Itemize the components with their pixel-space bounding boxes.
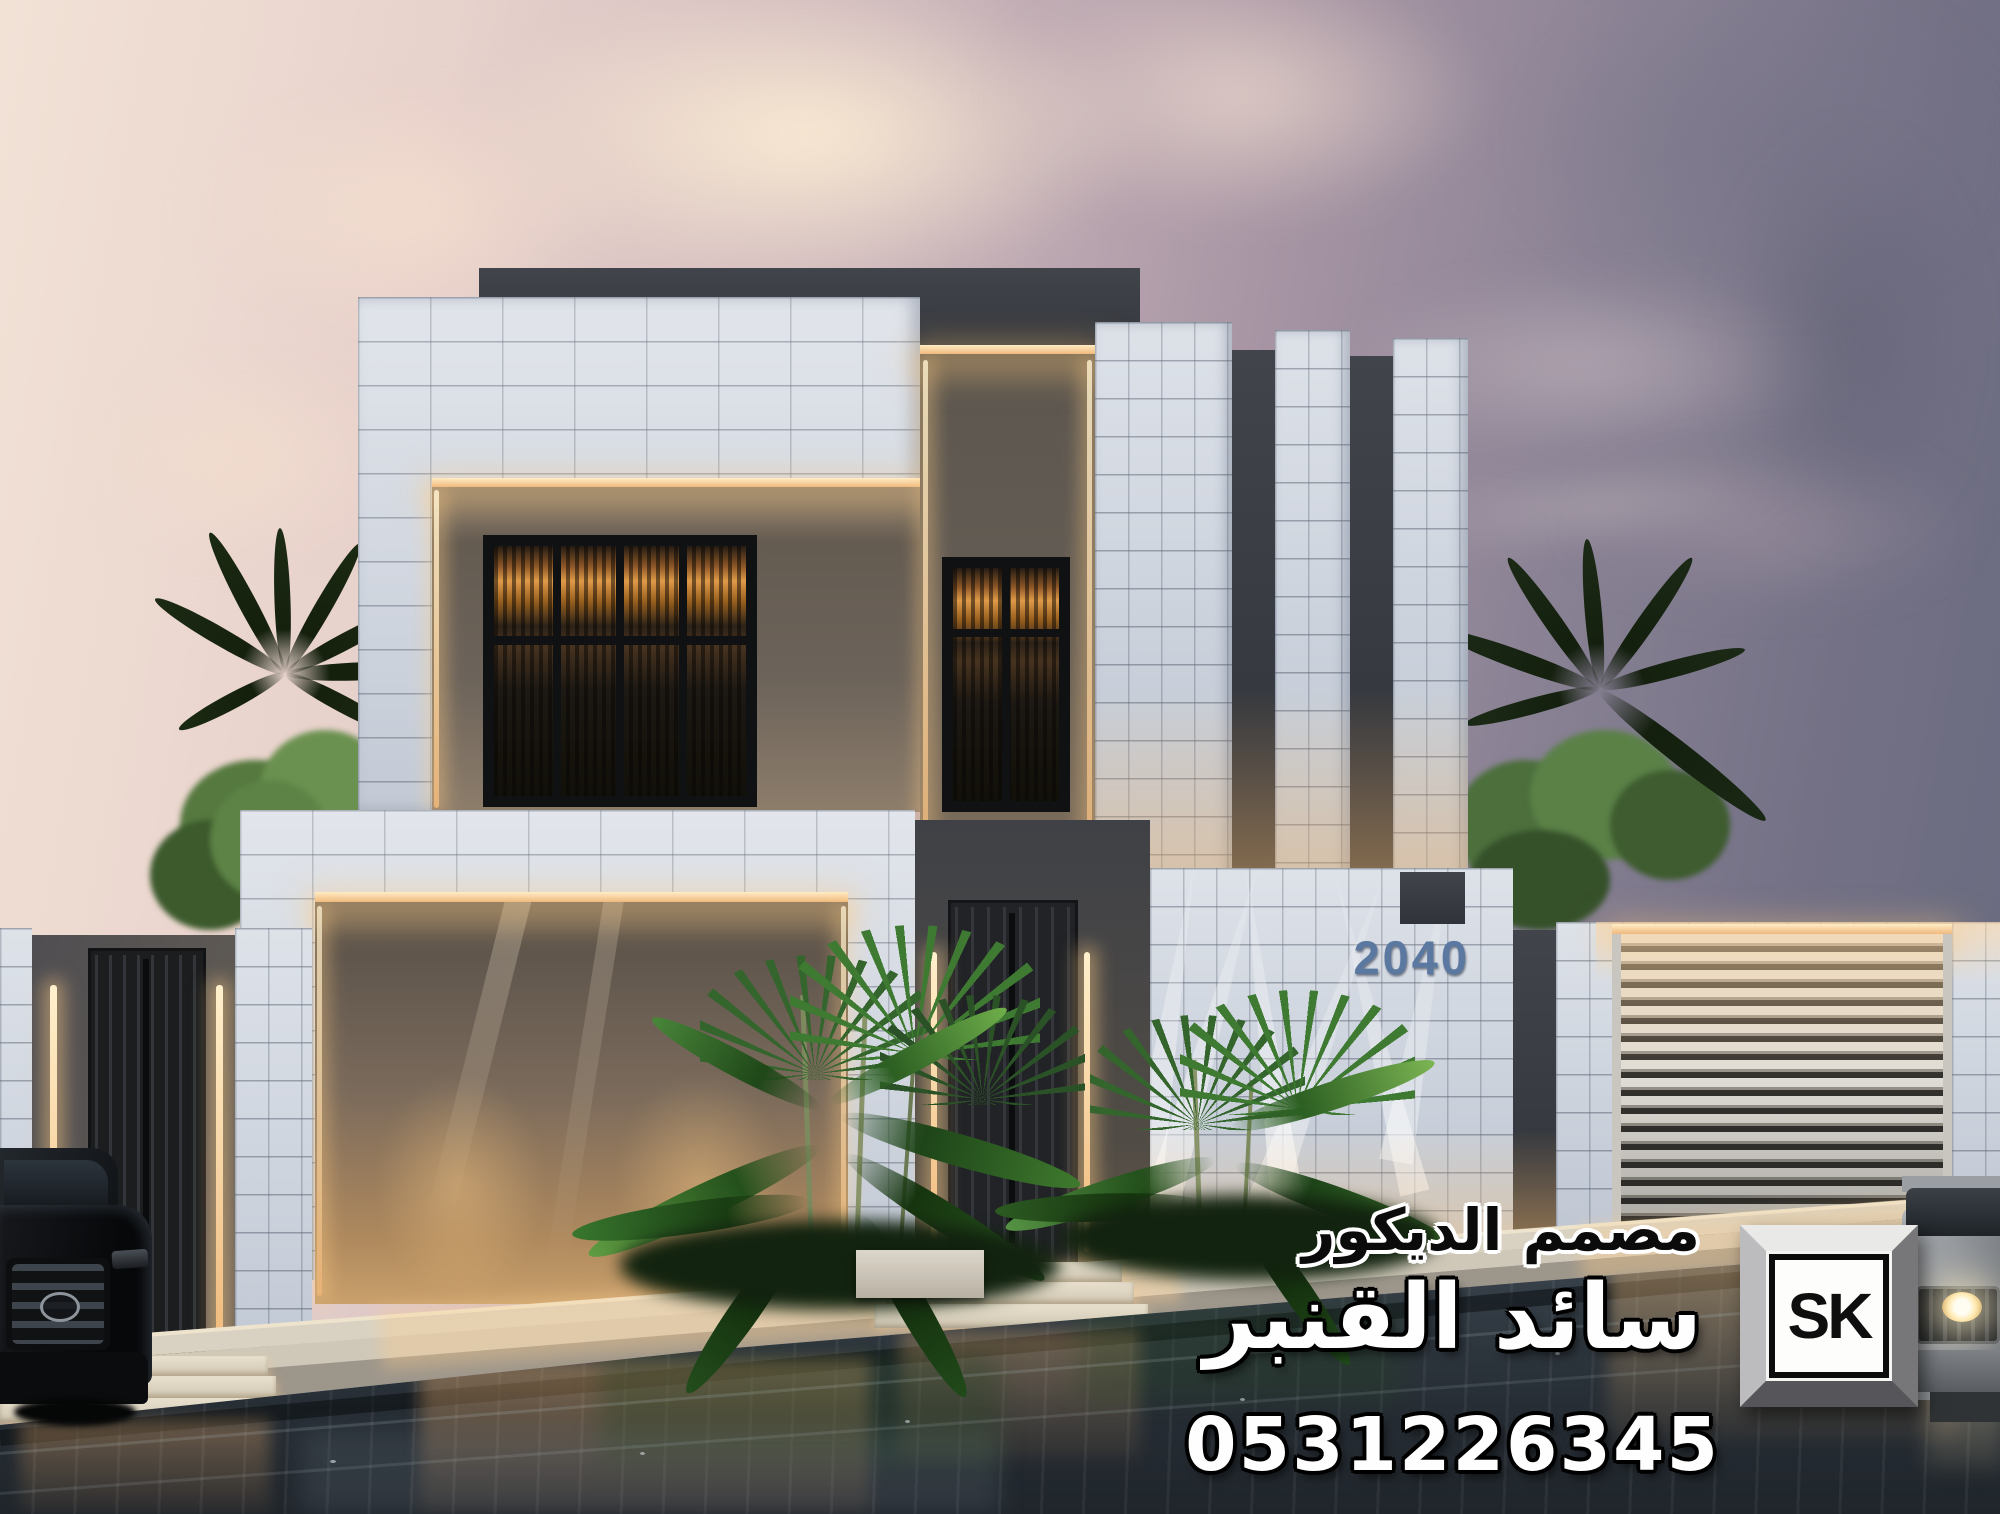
center-led-strip [923, 360, 928, 855]
sparkle [1240, 1398, 1245, 1401]
facade-joint-notch [1400, 872, 1465, 924]
window-mullion [553, 546, 561, 796]
sk-logo-plate: SK [1769, 1254, 1889, 1378]
tower-fin [1095, 322, 1232, 880]
tower-fin-gap [1232, 350, 1275, 880]
suv-left-headlight [111, 1249, 148, 1269]
house-number: 2040 [1280, 930, 1470, 985]
sparkle [640, 1452, 645, 1455]
sk-logo: SK [1740, 1225, 1918, 1407]
suv-right-windshield [1906, 1188, 2000, 1236]
window-mullion [1002, 568, 1010, 801]
light-shaft [545, 893, 624, 1271]
upper-window [483, 535, 757, 807]
window-mullion [616, 546, 624, 796]
wall-washer-glow [375, 1072, 545, 1302]
window-transom [494, 636, 746, 645]
center-cove-light [920, 345, 1095, 354]
upper-led-strip [434, 490, 439, 808]
street-reflection-sky [300, 1430, 1000, 1514]
tower-fin [1275, 330, 1350, 880]
suv-right-skid [1930, 1392, 2000, 1422]
sparkle [905, 1420, 910, 1423]
palm-frond [1463, 680, 1602, 732]
center-window [942, 557, 1070, 812]
watermark-phone: 0531226345 [1090, 1402, 1720, 1488]
center-led-strip [1087, 360, 1092, 855]
suv-left-tire-shadow [14, 1398, 136, 1426]
planter-box [856, 1250, 984, 1298]
window-mullion [679, 546, 687, 796]
court-led-strip [317, 906, 322, 1296]
gate-led-strip [216, 985, 223, 1353]
cloud [1690, 70, 2000, 610]
sk-logo-text: SK [1788, 1279, 1871, 1353]
upper-cove-light [432, 478, 920, 487]
toyota-emblem [40, 1292, 80, 1322]
roller-header-light [1612, 924, 1952, 934]
watermark-title: مصمم الديكور [1100, 1200, 1700, 1261]
plant-base-shadow [620, 1220, 1060, 1310]
villa-exterior-render: 2040 [0, 0, 2000, 1514]
garage-court-cove-light [315, 892, 848, 902]
sparkle [330, 1460, 336, 1463]
palm-frond [175, 666, 288, 736]
watermark-name: سائد القنبر [1080, 1268, 1702, 1367]
suv-right-headlight [1942, 1292, 1982, 1322]
tower-fin-gap [1350, 356, 1393, 880]
tower-fin [1393, 338, 1468, 880]
suv-left-bumper [0, 1352, 148, 1404]
window-transom [953, 629, 1059, 637]
